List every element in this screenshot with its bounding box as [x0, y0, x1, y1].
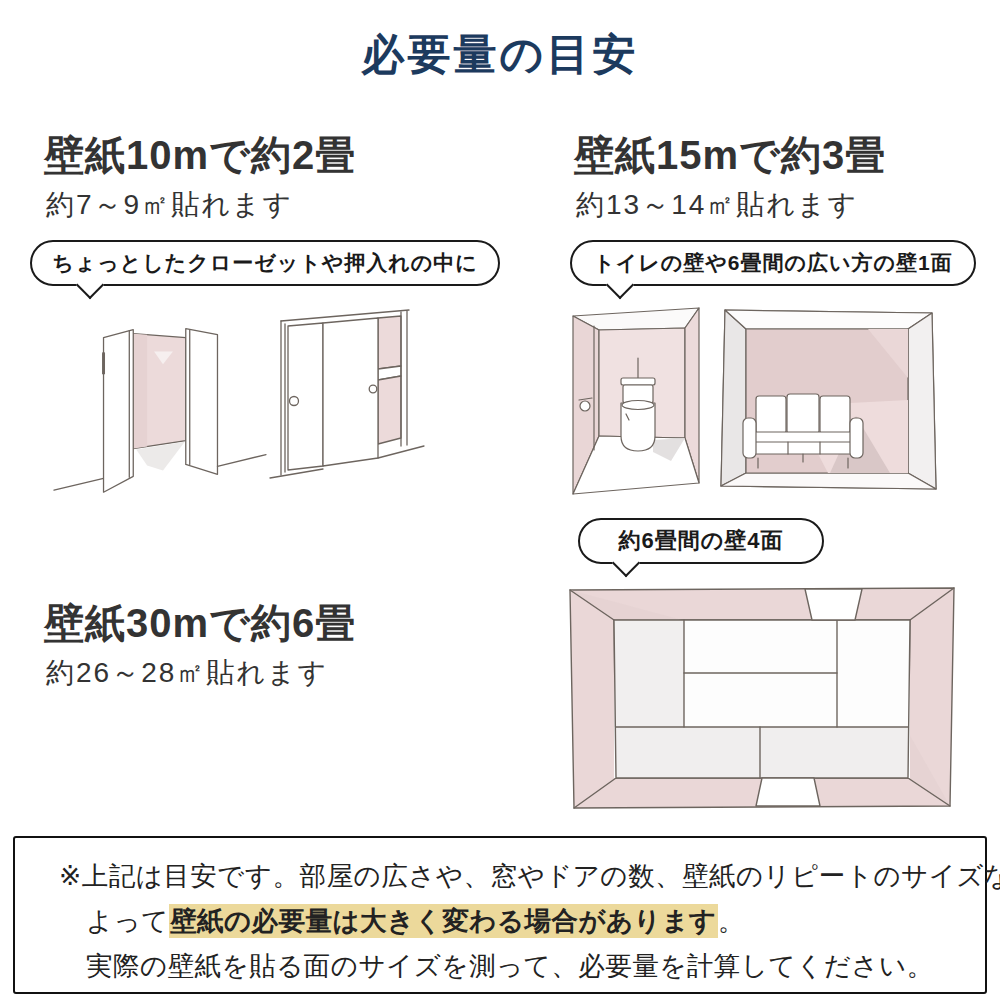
- speech-bubble-15m: トイレの壁や6畳間の広い方の壁1面: [570, 240, 976, 286]
- speech-bubble-10m: ちょっとしたクローゼットや押入れの中に: [30, 240, 500, 286]
- note-line-2-prefix: よって: [86, 906, 169, 936]
- sofa-room-illustration: [718, 296, 968, 506]
- speech-bubble-30m: 約6畳間の壁4面: [578, 518, 824, 564]
- subtext-15m: 約13～14㎡貼れます: [576, 186, 858, 224]
- wallpaper-quantity-infographic: 必要量の目安 壁紙10mで約2畳 約7～9㎡貼れます ちょっとしたクローゼットや…: [0, 0, 1000, 1000]
- disclaimer-note-box: ※上記は目安です。部屋の広さや、窓やドアの数、壁紙のリピートのサイズなどに よっ…: [13, 836, 987, 994]
- speech-bubble-15m-label: トイレの壁や6畳間の広い方の壁1面: [593, 249, 952, 277]
- heading-15m: 壁紙15mで約3畳: [574, 128, 886, 183]
- note-line-1: ※上記は目安です。部屋の広さや、窓やドアの数、壁紙のリピートのサイズなどに: [59, 854, 965, 899]
- subtext-10m: 約7～9㎡貼れます: [46, 186, 293, 224]
- speech-bubble-10m-label: ちょっとしたクローゼットや押入れの中に: [52, 249, 477, 277]
- subtext-30m: 約26～28㎡貼れます: [46, 654, 328, 692]
- sliding-closet-illustration: [268, 298, 488, 508]
- toilet-room-illustration: [565, 298, 715, 498]
- heading-30m: 壁紙30mで約6畳: [44, 596, 356, 651]
- note-line-2: よって壁紙の必要量は大きく変わる場合があります。: [59, 899, 965, 944]
- note-line-3: 実際の壁紙を貼る面のサイズを測って、必要量を計算してください。: [59, 944, 965, 989]
- note-line-2-suffix: 。: [718, 906, 745, 936]
- note-line-2-highlight: 壁紙の必要量は大きく変わる場合があります: [169, 904, 718, 938]
- page-title: 必要量の目安: [0, 26, 1000, 84]
- tatami-room-top-view-illustration: [562, 582, 962, 812]
- speech-bubble-30m-label: 約6畳間の壁4面: [619, 526, 784, 556]
- open-closet-illustration: [52, 296, 270, 514]
- heading-10m: 壁紙10mで約2畳: [44, 128, 356, 183]
